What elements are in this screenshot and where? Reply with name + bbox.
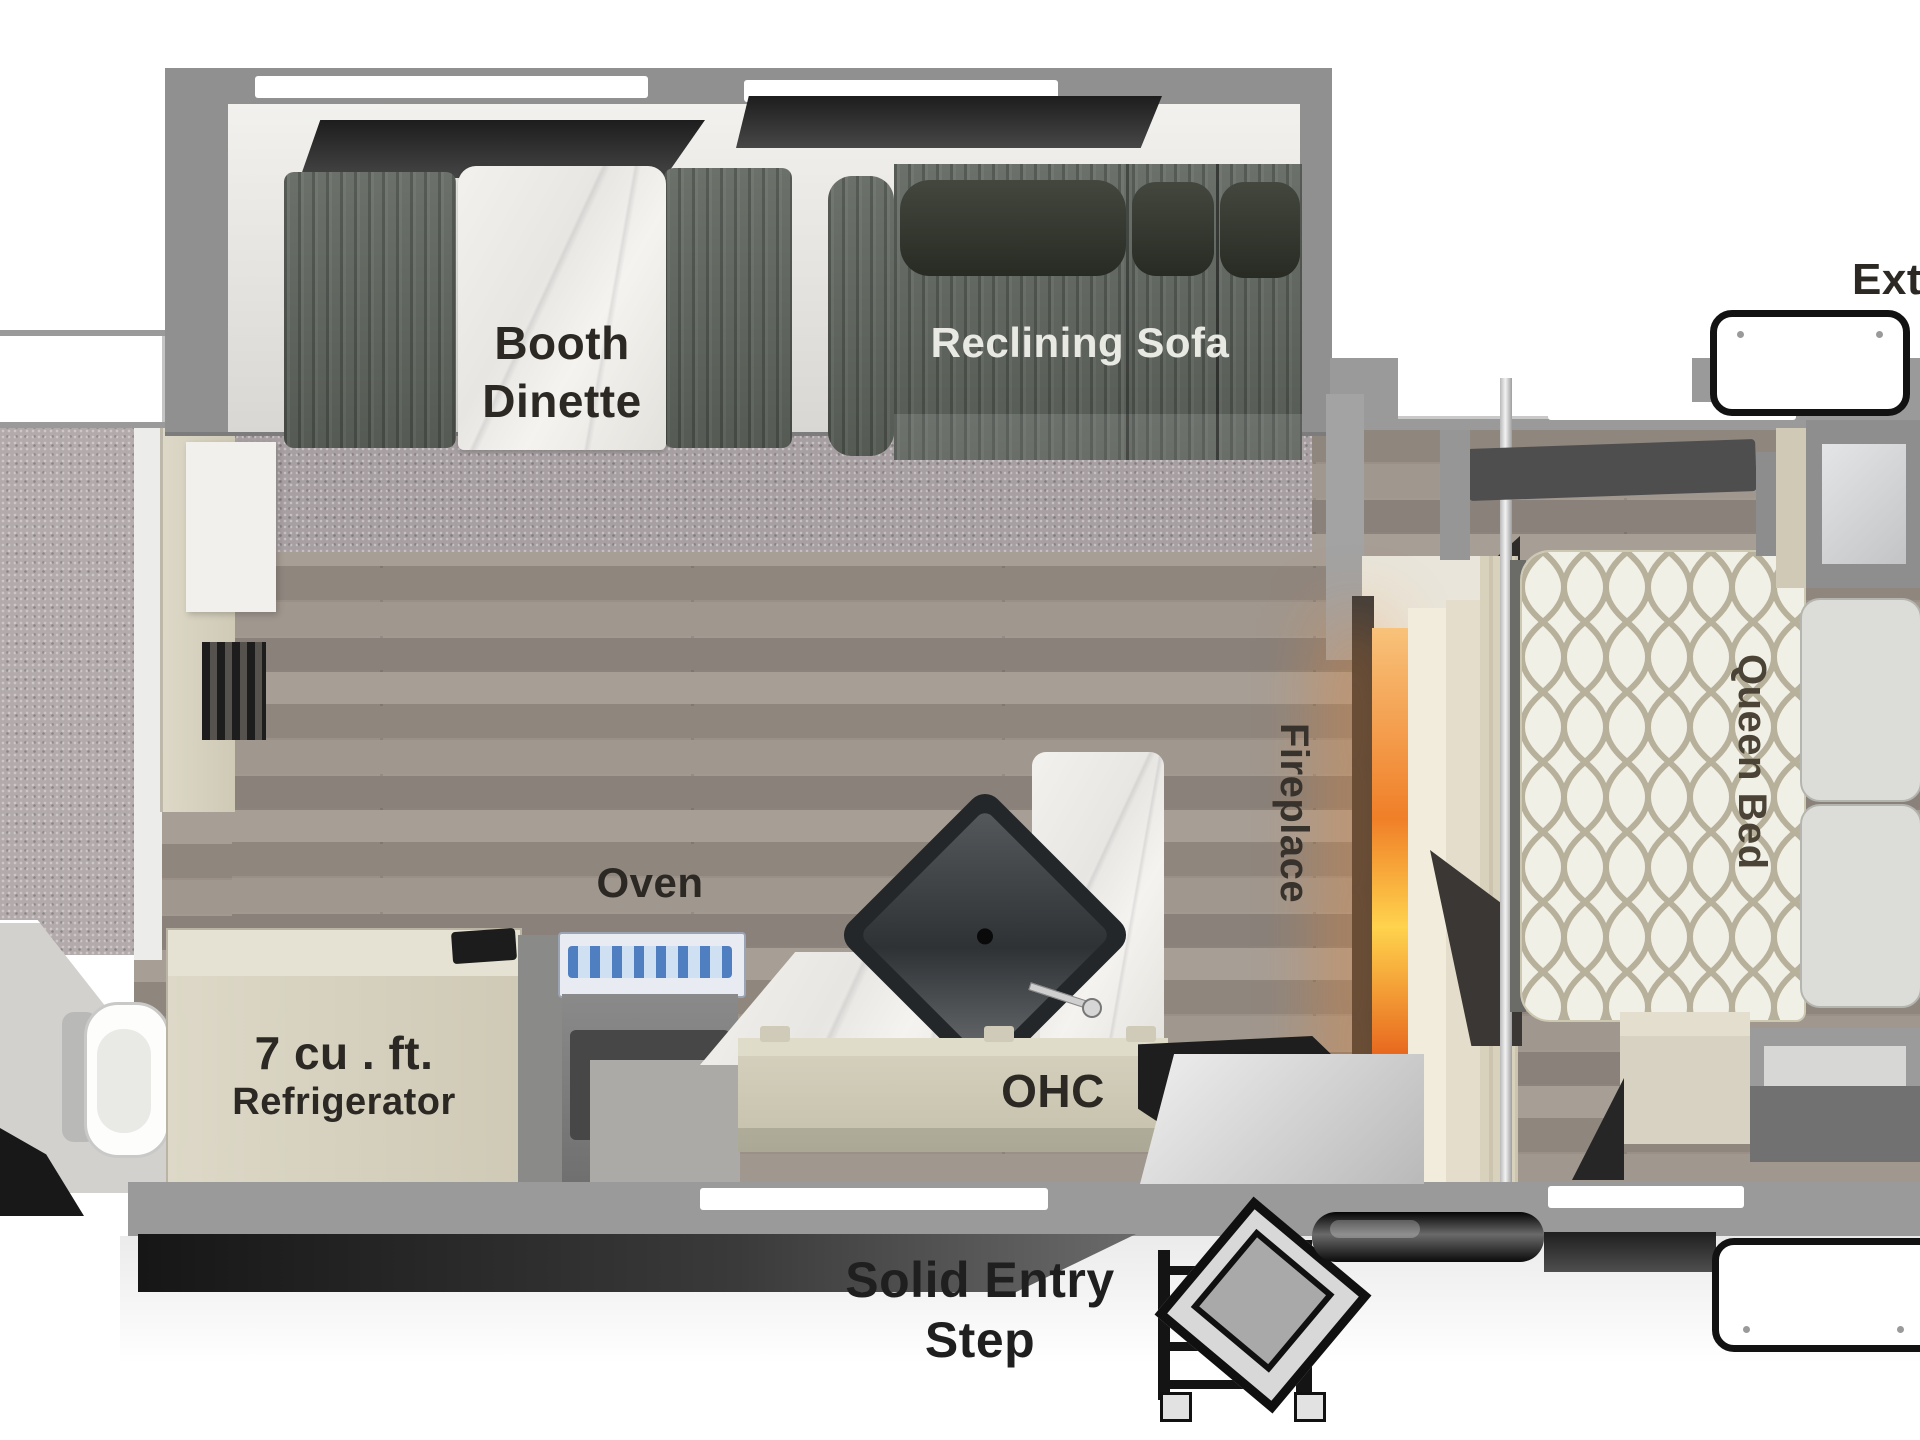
ohc-tab-2 [984, 1026, 1014, 1042]
dresser-top [1620, 1012, 1750, 1036]
wardrobe-return [1776, 428, 1806, 588]
dinette-bench-right [664, 168, 792, 448]
reclining-sofa-label: Reclining Sofa [900, 318, 1260, 368]
ohc-label: OHC [958, 1064, 1148, 1119]
kitchen-lower-cabinet [590, 1060, 740, 1188]
booth-dinette-label-line2: Dinette [448, 372, 676, 430]
cooktop-burner-row [568, 946, 732, 978]
bedroom-dresser [1620, 1012, 1750, 1144]
solid-entry-step-label: Solid Entry Step [780, 1250, 1180, 1370]
overhead-tv-slab [1467, 439, 1757, 501]
sofa-front-edge [894, 414, 1302, 460]
sofa-headrest-2 [1132, 182, 1214, 276]
overhead-post-left [1440, 430, 1470, 560]
sofa-window [736, 96, 1162, 148]
bed-pillow-1 [1800, 598, 1920, 802]
wardrobe-glass [1822, 444, 1906, 564]
entry-step-tread-inner [1191, 1229, 1335, 1373]
slideout-window-strip-dinette [255, 76, 648, 98]
exterior-label-partial: Exte [1852, 254, 1920, 307]
entry-step-foot-right [1294, 1392, 1326, 1422]
sofa-armrest [828, 176, 894, 456]
fireplace-label: Fireplace [1262, 698, 1318, 928]
pipe-highlight [1330, 1220, 1420, 1238]
window-seat-glass [1764, 1046, 1906, 1086]
furnace-vent [202, 642, 266, 740]
sink-faucet-handle [1082, 998, 1102, 1018]
toilet-seat [97, 1029, 151, 1133]
left-carpet [0, 428, 138, 955]
bedroom-window [1398, 296, 1692, 419]
left-wall-band [134, 428, 162, 960]
ohc-bottom-shade [738, 1128, 1168, 1152]
window-seat-base [1750, 1086, 1920, 1162]
screw-icon [1897, 1326, 1904, 1333]
solid-entry-step-label-line2: Step [780, 1310, 1180, 1370]
entry-landing-platform [1140, 1054, 1424, 1184]
sofa-seam-1 [1126, 164, 1129, 460]
refrigerator-edge-trim [451, 928, 517, 964]
screw-icon [1876, 331, 1883, 338]
entry-step-foot-left [1160, 1392, 1192, 1422]
booth-dinette-label: Booth Dinette [448, 314, 676, 430]
underside-trim-right [1544, 1232, 1716, 1272]
bed-pillow-2 [1800, 804, 1920, 1008]
ohc-top-lip [738, 1038, 1168, 1056]
exterior-compartment-door-top [1710, 310, 1910, 416]
ohc-tab-1 [760, 1026, 790, 1042]
bottom-window-strip-bedroom [1548, 1186, 1744, 1208]
oven-label: Oven [540, 858, 760, 908]
sofa-headrest-1 [900, 180, 1126, 276]
toilet [84, 1002, 170, 1158]
range-cooktop [558, 932, 746, 998]
queen-bed-label: Queen Bed [1718, 644, 1776, 880]
sofa-seam-2 [1216, 164, 1219, 460]
refrigerator-label-line2: Refrigerator [168, 1080, 520, 1126]
bedroom-wardrobe [1806, 420, 1920, 588]
dinette-bench-left [284, 172, 456, 448]
rv-floorplan-canvas: Booth Dinette Reclining Sofa 7 cu . ft. … [0, 0, 1920, 1440]
exterior-compartment-door-bottom [1712, 1238, 1920, 1352]
bottom-window-strip-kitchen [700, 1188, 1048, 1210]
kitchen-gap-cabinet [518, 935, 562, 1188]
front-left-window [0, 336, 165, 422]
solid-entry-step-label-line1: Solid Entry [780, 1250, 1180, 1310]
screw-icon [1737, 331, 1744, 338]
bedroom-window-seat [1750, 1028, 1920, 1162]
white-partition [186, 442, 276, 612]
ohc-tab-3 [1126, 1026, 1156, 1042]
refrigerator-label-line1: 7 cu . ft. [168, 1026, 520, 1081]
sofa-headrest-3 [1220, 182, 1300, 278]
booth-dinette-label-line1: Booth [448, 314, 676, 372]
refrigerator: 7 cu . ft. Refrigerator [166, 928, 522, 1192]
underside-pipe [1312, 1212, 1544, 1262]
screw-icon [1743, 1326, 1750, 1333]
